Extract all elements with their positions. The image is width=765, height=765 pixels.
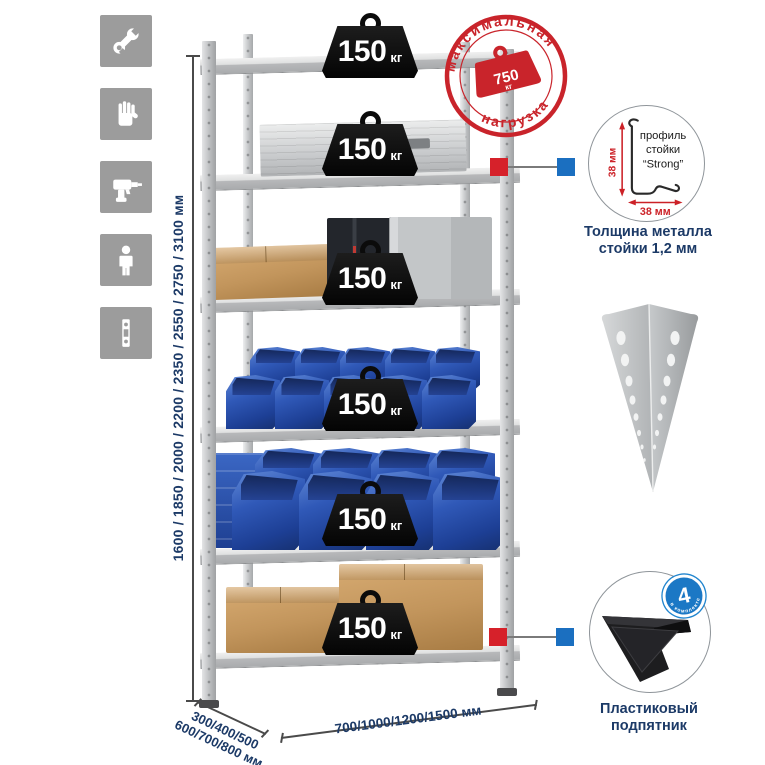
height-dimension-line <box>192 56 194 702</box>
profile-detail-circle: 38 мм 38 мм профиль стойки “Strong” <box>588 105 705 222</box>
profile-drawing: 38 мм 38 мм профиль стойки “Strong” <box>589 106 704 221</box>
person-icon-tile <box>100 234 152 286</box>
storage-bin <box>232 471 305 550</box>
weight-value: 150 <box>338 612 387 646</box>
shelf-load-weight-3: 150кг <box>322 240 418 305</box>
drill-icon-tile <box>100 161 152 213</box>
upright-profile-image <box>595 296 707 505</box>
profile-dim-vertical: 38 мм <box>607 148 618 177</box>
weight-unit: кг <box>390 277 402 292</box>
profile-label-line3: “Strong” <box>643 158 684 170</box>
height-dimension-label: 1600 / 1850 / 2000 / 2200 / 2350 / 2550 … <box>170 48 186 708</box>
shelf-load-weight-6: 150кг <box>322 590 418 655</box>
wrench-icon <box>109 24 143 58</box>
shelf-load-weight-1: 150кг <box>322 13 418 78</box>
storage-bin <box>422 375 476 429</box>
gloves-icon <box>109 97 143 131</box>
plastic-foot-caption: Пластиковый подпятник <box>584 701 714 735</box>
callout-line-top <box>508 166 558 168</box>
rack-post-icon-tile <box>100 307 152 359</box>
metal-thickness-caption: Толщина металла стойки 1,2 мм <box>578 224 718 258</box>
weight-value: 150 <box>338 35 387 69</box>
storage-bin <box>275 375 329 429</box>
metal-thickness-caption-line2: стойки 1,2 мм <box>578 241 718 258</box>
rack-foot-right <box>497 688 517 696</box>
profile-label-line2: стойки <box>646 144 680 156</box>
shelf-load-weight-4: 150кг <box>322 366 418 431</box>
max-load-stamp: максимальная нагрузка 750 кг <box>443 13 569 144</box>
rack-post-icon <box>109 316 143 350</box>
storage-bin <box>433 471 506 550</box>
weight-unit: кг <box>390 627 402 642</box>
shelf-load-weight-2: 150кг <box>322 111 418 176</box>
weight-unit: кг <box>390 518 402 533</box>
profile-label-line1: профиль <box>640 130 686 142</box>
weight-unit: кг <box>390 403 402 418</box>
callout-marker-red-bottom <box>489 628 507 646</box>
product-infographic: 1600 / 1850 / 2000 / 2200 / 2350 / 2550 … <box>0 0 765 765</box>
callout-marker-red-top <box>490 158 508 176</box>
plastic-foot-caption-line1: Пластиковый <box>584 701 714 718</box>
profile-dim-horizontal: 38 мм <box>640 206 671 218</box>
weight-unit: кг <box>390 50 402 65</box>
plastic-foot-caption-line2: подпятник <box>584 718 714 735</box>
depth-dimension-label: 300/400/500 600/700/800 мм <box>148 692 297 765</box>
callout-marker-blue-bottom <box>556 628 574 646</box>
metal-thickness-caption-line1: Толщина металла <box>578 224 718 241</box>
rack-post-front-left <box>202 41 216 703</box>
person-icon <box>109 243 143 277</box>
gloves-icon-tile <box>100 88 152 140</box>
weight-value: 150 <box>338 388 387 422</box>
cardboard-box-shelf3 <box>211 244 333 300</box>
weight-value: 150 <box>338 133 387 167</box>
rack-post-front-right <box>500 49 514 691</box>
height-dimension-tick-top <box>186 55 200 57</box>
storage-bin <box>226 375 280 429</box>
weight-value: 150 <box>338 262 387 296</box>
drill-icon <box>109 170 143 204</box>
wrench-icon-tile <box>100 15 152 67</box>
callout-line-bottom <box>507 636 557 638</box>
rack-foot-left <box>199 700 219 708</box>
weight-value: 150 <box>338 503 387 537</box>
kit-quantity-badge: 4 в комплекте <box>660 572 708 625</box>
width-dimension-label: 700/1000/1200/1500 мм <box>283 696 533 743</box>
callout-marker-blue-top <box>557 158 575 176</box>
weight-unit: кг <box>390 148 402 163</box>
shelf-load-weight-5: 150кг <box>322 481 418 546</box>
